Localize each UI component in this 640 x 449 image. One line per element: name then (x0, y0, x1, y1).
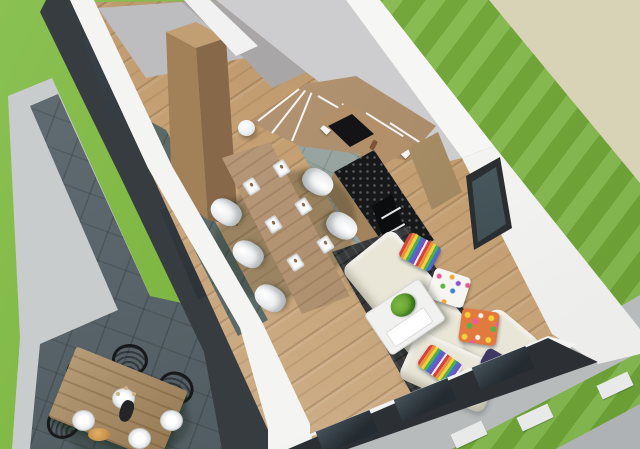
throw-pillow-bouquet (458, 308, 500, 347)
outdoor-plate (160, 410, 183, 431)
floor-lamp-sphere (238, 120, 255, 136)
dried-flower (124, 386, 128, 390)
fruit-bowl (88, 428, 110, 441)
dried-flower (132, 392, 136, 396)
outdoor-plate (72, 410, 95, 431)
outdoor-plate (128, 428, 151, 449)
render-viewport (0, 0, 640, 449)
dried-flower (116, 392, 120, 396)
